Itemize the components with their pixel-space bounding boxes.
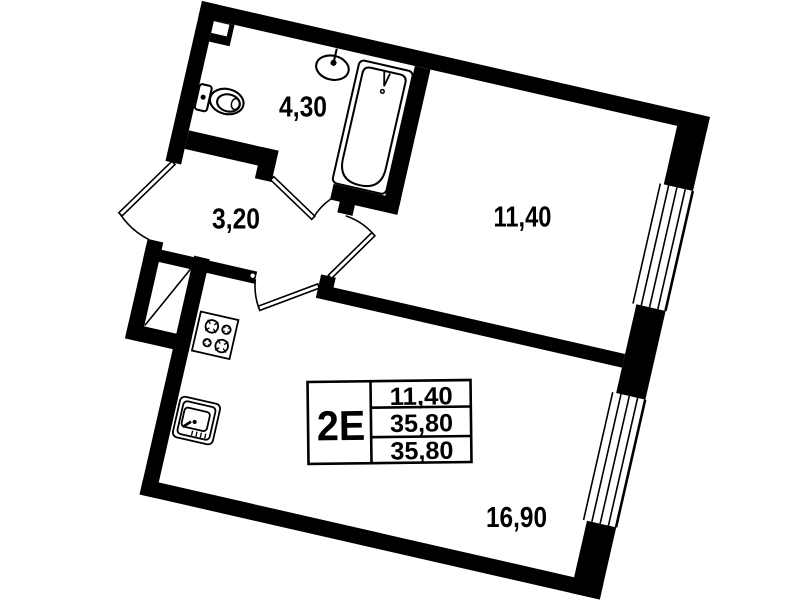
svg-text:2E: 2E <box>317 402 366 450</box>
svg-text:3,20: 3,20 <box>212 204 260 236</box>
svg-text:4,30: 4,30 <box>279 92 327 124</box>
svg-text:11,40: 11,40 <box>494 202 552 234</box>
svg-text:35,80: 35,80 <box>390 409 453 438</box>
svg-text:11,40: 11,40 <box>390 382 453 411</box>
svg-text:16,90: 16,90 <box>486 502 547 534</box>
svg-text:35,80: 35,80 <box>390 437 453 466</box>
